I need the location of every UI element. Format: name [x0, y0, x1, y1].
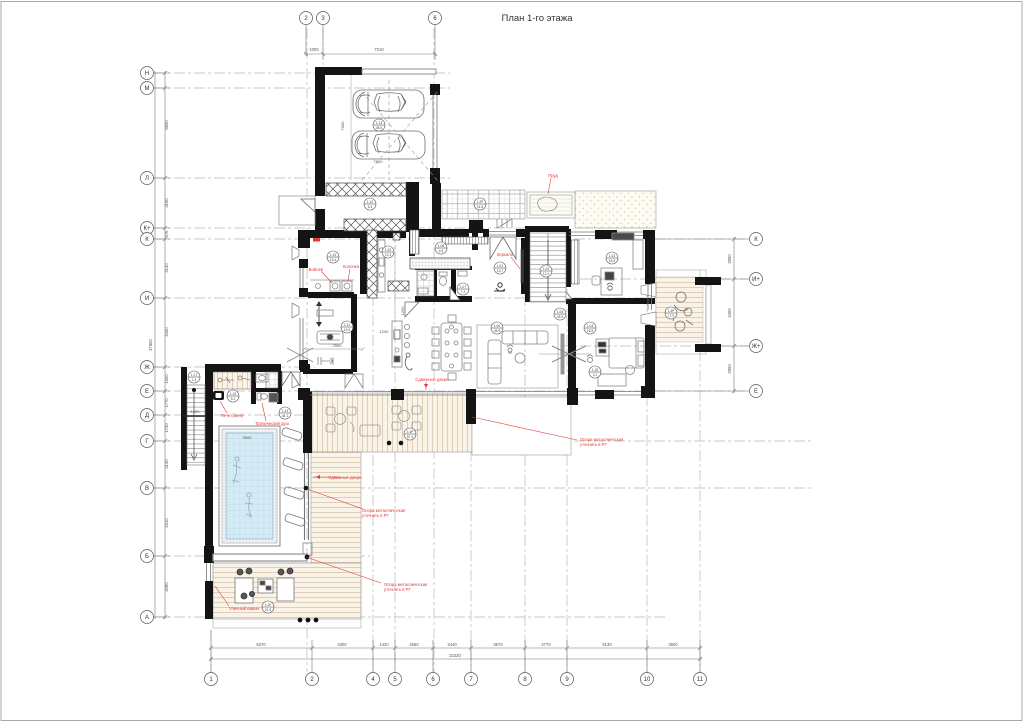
svg-text:4090: 4090: [164, 582, 169, 592]
svg-text:Зеркало: Зеркало: [497, 252, 514, 257]
svg-text:1200: 1200: [400, 306, 405, 316]
svg-text:7.2: 7.2: [461, 290, 466, 294]
svg-text:3570: 3570: [493, 642, 503, 647]
svg-text:Пруд: Пруд: [548, 173, 558, 178]
svg-text:2850: 2850: [727, 254, 732, 264]
svg-text:2500: 2500: [333, 343, 343, 348]
svg-text:Бойлер: Бойлер: [309, 267, 324, 272]
svg-text:И: И: [145, 296, 149, 302]
svg-text:1.1Р: 1.1Р: [265, 603, 272, 607]
svg-text:3190: 3190: [164, 198, 169, 208]
svg-text:13.4: 13.4: [330, 258, 336, 262]
svg-text:К: К: [754, 237, 758, 243]
svg-text:2850: 2850: [727, 364, 732, 374]
svg-text:4300: 4300: [337, 642, 347, 647]
svg-text:37800: 37800: [148, 339, 153, 351]
svg-text:470: 470: [164, 230, 169, 238]
svg-text:Л: Л: [145, 176, 149, 182]
svg-text:3140: 3140: [164, 459, 169, 469]
svg-text:5.2: 5.2: [231, 397, 236, 401]
svg-text:1.05: 1.05: [557, 310, 563, 314]
svg-text:32220: 32220: [449, 653, 461, 658]
svg-text:Сдвижные двери: Сдвижные двери: [328, 475, 362, 480]
svg-text:1.02: 1.02: [543, 267, 549, 271]
svg-text:6370: 6370: [256, 642, 266, 647]
svg-text:57.4: 57.4: [407, 435, 413, 439]
svg-text:1.14: 1.14: [282, 409, 288, 413]
svg-text:Б: Б: [145, 554, 149, 560]
svg-text:уточнить в РГ: уточнить в РГ: [362, 513, 389, 518]
svg-text:1.03: 1.03: [609, 254, 615, 258]
svg-text:И+: И+: [752, 277, 760, 283]
svg-text:45.9: 45.9: [494, 329, 500, 333]
svg-text:1.3Р: 1.3Р: [668, 309, 675, 313]
svg-text:1.06: 1.06: [494, 324, 500, 328]
svg-text:1770: 1770: [164, 398, 169, 408]
svg-text:1.13: 1.13: [376, 121, 382, 125]
svg-text:2560: 2560: [409, 642, 419, 647]
svg-text:16.8: 16.8: [587, 329, 593, 333]
svg-text:14.8: 14.8: [477, 205, 483, 209]
svg-text:1200: 1200: [380, 329, 390, 334]
svg-text:7000: 7000: [374, 159, 384, 164]
svg-text:10: 10: [644, 677, 651, 683]
svg-text:4130: 4130: [164, 263, 169, 273]
svg-text:1.12: 1.12: [367, 200, 373, 204]
svg-text:21.5: 21.5: [265, 608, 271, 612]
svg-text:1.11: 1.11: [344, 323, 350, 327]
svg-text:1.04: 1.04: [587, 324, 593, 328]
svg-text:Е: Е: [754, 389, 758, 395]
svg-text:1.10: 1.10: [330, 253, 336, 257]
svg-text:1000: 1000: [309, 47, 319, 52]
svg-text:7000: 7000: [340, 121, 345, 131]
svg-text:К+: К+: [144, 226, 151, 232]
svg-text:1.4Р: 1.4Р: [407, 430, 414, 434]
svg-text:1.17: 1.17: [191, 373, 197, 377]
svg-text:2440: 2440: [447, 642, 457, 647]
svg-text:Е: Е: [145, 389, 149, 395]
svg-text:Ж: Ж: [144, 365, 150, 371]
svg-text:13.6: 13.6: [344, 328, 350, 332]
svg-text:Уличный камин: Уличный камин: [229, 606, 260, 611]
svg-text:2770: 2770: [541, 642, 551, 647]
svg-text:1.2Р: 1.2Р: [477, 200, 484, 204]
svg-text:1.09: 1.09: [385, 248, 391, 252]
svg-text:1.16: 1.16: [230, 392, 236, 396]
svg-text:6800: 6800: [164, 120, 169, 130]
svg-text:4310: 4310: [164, 518, 169, 528]
svg-text:А: А: [145, 615, 149, 621]
svg-text:4.6: 4.6: [439, 249, 444, 253]
svg-text:12.4: 12.4: [543, 272, 549, 276]
svg-text:Д: Д: [145, 413, 149, 419]
svg-text:3000: 3000: [243, 435, 253, 440]
svg-text:1420: 1420: [379, 642, 389, 647]
svg-text:17.0: 17.0: [668, 314, 674, 318]
svg-text:11: 11: [697, 677, 704, 683]
svg-text:План 1-го этажа: План 1-го этажа: [502, 13, 574, 24]
svg-text:13.7: 13.7: [497, 269, 503, 273]
svg-text:5130: 5130: [602, 642, 612, 647]
svg-text:1.08: 1.08: [438, 244, 444, 248]
svg-text:45.9: 45.9: [557, 315, 563, 319]
svg-text:Ж+: Ж+: [751, 344, 761, 350]
svg-text:6.4: 6.4: [368, 205, 373, 209]
svg-text:Печь (баня): Печь (баня): [221, 413, 244, 418]
svg-text:1.15: 1.15: [592, 368, 598, 372]
svg-text:К: К: [145, 237, 149, 243]
svg-text:7210: 7210: [374, 47, 384, 52]
svg-text:В: В: [145, 486, 149, 492]
svg-text:1.07: 1.07: [460, 285, 466, 289]
svg-text:44.1: 44.1: [282, 414, 288, 418]
svg-text:3.1: 3.1: [593, 373, 598, 377]
svg-text:Сдвижные двери: Сдвижные двери: [415, 377, 449, 382]
svg-text:1.01: 1.01: [497, 264, 503, 268]
svg-text:уточнить в РГ: уточнить в РГ: [384, 587, 411, 592]
svg-text:2.4: 2.4: [192, 378, 197, 382]
svg-text:15.9: 15.9: [609, 259, 615, 263]
svg-text:1730: 1730: [164, 423, 169, 433]
svg-text:уточнить в РГ: уточнить в РГ: [580, 442, 607, 447]
svg-text:1200: 1200: [191, 409, 201, 414]
svg-text:3600: 3600: [668, 642, 678, 647]
svg-text:12.3: 12.3: [385, 253, 391, 257]
svg-text:4300: 4300: [727, 308, 732, 318]
svg-text:48.0: 48.0: [376, 126, 382, 130]
svg-text:4450: 4450: [164, 327, 169, 337]
svg-text:Колонка: Колонка: [343, 264, 360, 269]
svg-text:Н: Н: [145, 71, 149, 77]
svg-text:М: М: [145, 86, 150, 92]
svg-text:1500: 1500: [164, 374, 169, 384]
svg-text:Тропический душ: Тропический душ: [255, 421, 289, 426]
